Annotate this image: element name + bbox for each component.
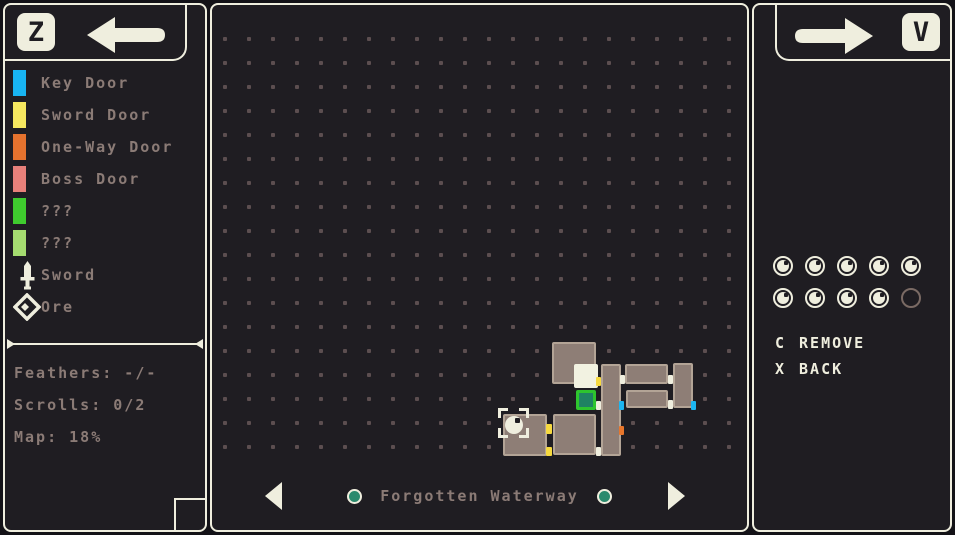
grid-dot [415, 181, 419, 185]
grid-dot [391, 205, 395, 209]
grid-dot [367, 421, 371, 425]
grid-dot [439, 301, 443, 305]
grid-dot [319, 445, 323, 449]
grid-dot [343, 37, 347, 41]
grid-dot [631, 277, 635, 281]
orb-notch [912, 261, 916, 265]
grid-dot [559, 85, 563, 89]
grid-dot [319, 85, 323, 89]
grid-dot [319, 133, 323, 137]
map-door-sword [546, 424, 552, 434]
boss-door-swatch [13, 166, 26, 192]
grid-dot [655, 109, 659, 113]
grid-dot [247, 37, 251, 41]
grid-dot [583, 229, 587, 233]
grid-dot [631, 229, 635, 233]
grid-dot [391, 37, 395, 41]
grid-dot [511, 229, 515, 233]
grid-dot [295, 181, 299, 185]
grid-dot [247, 109, 251, 113]
map-door-sword [546, 447, 552, 456]
grid-dot [583, 61, 587, 65]
grid-dot [487, 253, 491, 257]
grid-dot [535, 325, 539, 329]
map-door-key [691, 401, 696, 410]
grid-dot [631, 85, 635, 89]
grid-dot [535, 85, 539, 89]
grid-dot [631, 181, 635, 185]
grid-dot [535, 253, 539, 257]
grid-dot [727, 205, 731, 209]
grid-dot [559, 181, 563, 185]
grid-dot [439, 253, 443, 257]
grid-dot [271, 85, 275, 89]
grid-dot [535, 301, 539, 305]
stats-block: Feathers: -/- Scrolls: 0/2 Map: 18% [14, 357, 157, 453]
grid-dot [223, 157, 227, 161]
grid-dot [487, 397, 491, 401]
grid-dot [223, 229, 227, 233]
legend-label: One-Way Door [41, 138, 173, 156]
grid-dot [679, 157, 683, 161]
grid-dot [535, 205, 539, 209]
grid-dot [703, 397, 707, 401]
grid-dot [271, 421, 275, 425]
grid-dot [535, 133, 539, 137]
grid-dot [631, 349, 635, 353]
legend-item-ore: Ore [13, 291, 173, 323]
grid-dot [703, 133, 707, 137]
grid-dot [679, 253, 683, 257]
grid-dot [247, 301, 251, 305]
one-way-door-swatch [13, 134, 26, 160]
grid-dot [415, 373, 419, 377]
grid-dot [703, 181, 707, 185]
grid-dot [679, 205, 683, 209]
grid-dot [367, 133, 371, 137]
back-label: BACK [799, 360, 843, 378]
grid-dot [679, 37, 683, 41]
grid-dot [391, 445, 395, 449]
legend-label: Sword Door [41, 106, 151, 124]
grid-dot [583, 181, 587, 185]
grid-dot [655, 85, 659, 89]
grid-dot [343, 349, 347, 353]
grid-dot [367, 229, 371, 233]
grid-dot [415, 109, 419, 113]
grid-dot [247, 373, 251, 377]
grid-dot [439, 277, 443, 281]
grid-dot [295, 37, 299, 41]
grid-dot [487, 85, 491, 89]
grid-dot [295, 445, 299, 449]
grid-dot [295, 61, 299, 65]
grid-dot [271, 277, 275, 281]
grid-dot [391, 253, 395, 257]
grid-dot [535, 61, 539, 65]
legend-label: ??? [41, 202, 74, 220]
back-action[interactable]: X BACK [775, 356, 865, 382]
legend-label: Key Door [41, 74, 129, 92]
grid-dot [559, 325, 563, 329]
grid-dot [679, 277, 683, 281]
collectible-slots [773, 256, 921, 320]
player-marker-notch [515, 418, 520, 423]
map-door-open [668, 375, 673, 384]
grid-dot [319, 373, 323, 377]
grid-dot [583, 205, 587, 209]
z-key-button[interactable]: Z [17, 13, 55, 51]
grid-dot [247, 325, 251, 329]
grid-dot [727, 421, 731, 425]
grid-dot [463, 373, 467, 377]
grid-dot [703, 373, 707, 377]
grid-dot [367, 85, 371, 89]
grid-dot [727, 277, 731, 281]
grid-dot [295, 133, 299, 137]
grid-dot [463, 301, 467, 305]
grid-dot [679, 133, 683, 137]
legend-item-unknown-2: ??? [13, 227, 173, 259]
collectible-orb-filled [901, 256, 921, 276]
grid-dot [631, 421, 635, 425]
grid-dot [463, 397, 467, 401]
grid-dot [727, 133, 731, 137]
ore-icon [13, 292, 41, 322]
grid-dot [223, 85, 227, 89]
grid-dot [367, 205, 371, 209]
grid-dot [367, 445, 371, 449]
grid-dot [703, 301, 707, 305]
grid-dot [511, 253, 515, 257]
grid-dot [559, 205, 563, 209]
map-door-oneway [619, 426, 624, 435]
grid-dot [583, 157, 587, 161]
legend-panel: Z Key Door Sword Door One-Way Door Boss … [3, 3, 207, 532]
grid-dot [391, 109, 395, 113]
grid-dot [607, 277, 611, 281]
legend-item-boss-door: Boss Door [13, 163, 173, 195]
grid-dot [607, 301, 611, 305]
grid-dot [223, 37, 227, 41]
grid-dot [295, 373, 299, 377]
grid-dot [439, 157, 443, 161]
grid-dot [511, 109, 515, 113]
map-layer [212, 5, 747, 530]
grid-dot [607, 349, 611, 353]
map-room-normal [625, 364, 668, 384]
grid-dot [607, 325, 611, 329]
grid-dot [559, 61, 563, 65]
grid-dot [727, 349, 731, 353]
grid-dot [343, 277, 347, 281]
grid-dot [439, 445, 443, 449]
grid-dot [343, 229, 347, 233]
grid-dot [391, 397, 395, 401]
grid-dot [319, 253, 323, 257]
grid-dot [463, 157, 467, 161]
grid-dot [487, 205, 491, 209]
grid-dot [607, 181, 611, 185]
grid-dot [703, 61, 707, 65]
grid-dot [391, 181, 395, 185]
grid-dot [415, 349, 419, 353]
divider-line [12, 343, 198, 345]
grid-dot [511, 349, 515, 353]
map-door-sword [596, 377, 601, 386]
grid-dot [223, 445, 227, 449]
grid-dot [703, 325, 707, 329]
grid-dot [583, 301, 587, 305]
grid-dot [559, 157, 563, 161]
grid-dot [631, 253, 635, 257]
map-room-normal [673, 363, 693, 408]
grid-dot [463, 205, 467, 209]
grid-dot [727, 445, 731, 449]
region-next-arrow[interactable] [668, 482, 685, 510]
grid-dot [223, 133, 227, 137]
grid-dot [607, 61, 611, 65]
grid-dot [343, 61, 347, 65]
grid-dot [463, 421, 467, 425]
grid-dot [511, 325, 515, 329]
grid-dot [703, 277, 707, 281]
grid-dot [559, 301, 563, 305]
collectible-slot-row [773, 288, 921, 308]
grid-dot [367, 253, 371, 257]
grid-dot [703, 349, 707, 353]
region-nav: Forgotten Waterway [212, 479, 747, 513]
divider-arrow-right-icon [195, 339, 203, 349]
grid-dot [223, 301, 227, 305]
grid-dot [583, 277, 587, 281]
grid-dot [679, 349, 683, 353]
grid-dot [511, 373, 515, 377]
grid-dot [271, 325, 275, 329]
grid-dot [415, 61, 419, 65]
action-hints: C REMOVE X BACK [775, 330, 865, 382]
grid-dot [535, 37, 539, 41]
grid-dot [463, 445, 467, 449]
map-room-special [576, 390, 596, 410]
grid-dot [271, 373, 275, 377]
grid-dot [463, 181, 467, 185]
legend-item-one-way-door: One-Way Door [13, 131, 173, 163]
grid-dot [583, 253, 587, 257]
grid-dot [583, 133, 587, 137]
grid-dot [391, 229, 395, 233]
grid-dot [487, 421, 491, 425]
map-door-open [668, 400, 673, 409]
grid-dot [727, 253, 731, 257]
remove-key-label: C [775, 334, 786, 352]
grid-dot [583, 109, 587, 113]
grid-dot [415, 421, 419, 425]
grid-dot [223, 373, 227, 377]
grid-dot [319, 205, 323, 209]
grid-dot [607, 229, 611, 233]
orb-notch [816, 261, 820, 265]
grid-dot [655, 325, 659, 329]
grid-dot [247, 253, 251, 257]
grid-dot [655, 277, 659, 281]
grid-dot [271, 37, 275, 41]
grid-dot [343, 301, 347, 305]
collectible-orb-filled [837, 256, 857, 276]
grid-dot [655, 349, 659, 353]
grid-dot [367, 301, 371, 305]
grid-dot [511, 181, 515, 185]
grid-dot [439, 229, 443, 233]
grid-dot [511, 397, 515, 401]
grid-dot [607, 253, 611, 257]
grid-dot [463, 253, 467, 257]
grid-dot [727, 397, 731, 401]
selection-cursor-corner [498, 408, 508, 418]
grid-dot [487, 133, 491, 137]
collectible-orb-filled [773, 288, 793, 308]
grid-dot [607, 37, 611, 41]
grid-dot [583, 85, 587, 89]
grid-dot [631, 157, 635, 161]
grid-dot [295, 253, 299, 257]
grid-dot [319, 229, 323, 233]
grid-dot [295, 349, 299, 353]
grid-dot [247, 133, 251, 137]
grid-dot [343, 253, 347, 257]
grid-dot [247, 445, 251, 449]
grid-dot [439, 205, 443, 209]
grid-dot [703, 157, 707, 161]
remove-action[interactable]: C REMOVE [775, 330, 865, 356]
grid-dot [463, 229, 467, 233]
map-door-open [596, 447, 601, 456]
grid-dot [271, 301, 275, 305]
grid-dot [463, 277, 467, 281]
grid-dot [271, 253, 275, 257]
collectible-orb-filled [869, 256, 889, 276]
legend-label: Boss Door [41, 170, 140, 188]
grid-dot [247, 277, 251, 281]
grid-dot [631, 325, 635, 329]
grid-dot [535, 229, 539, 233]
unknown-door-swatch [13, 198, 26, 224]
grid-dot [295, 325, 299, 329]
collectible-slot-row [773, 256, 921, 276]
sword-door-swatch [13, 102, 26, 128]
grid-dot [631, 61, 635, 65]
grid-dot [343, 205, 347, 209]
grid-dot [727, 325, 731, 329]
grid-dot [487, 373, 491, 377]
grid-dot [703, 253, 707, 257]
grid-dot [223, 277, 227, 281]
grid-dot [247, 205, 251, 209]
grid-dot [511, 133, 515, 137]
grid-dot [415, 445, 419, 449]
right-header-box: V [775, 3, 952, 61]
corner-decoration [174, 498, 207, 532]
grid-dot [655, 157, 659, 161]
grid-dot [631, 133, 635, 137]
orb-notch [784, 293, 788, 297]
grid-dot [415, 301, 419, 305]
collectible-orb-filled [869, 288, 889, 308]
grid-dot [271, 397, 275, 401]
grid-dot [367, 349, 371, 353]
grid-dot [295, 109, 299, 113]
orb-notch [784, 261, 788, 265]
grid-dot [655, 253, 659, 257]
selection-cursor-corner [498, 428, 508, 438]
grid-dot [679, 61, 683, 65]
grid-dot [679, 181, 683, 185]
grid-dot [463, 37, 467, 41]
grid-dot [391, 157, 395, 161]
grid-dot [319, 277, 323, 281]
grid-dot [319, 157, 323, 161]
collectible-orb-filled [805, 288, 825, 308]
grid-dot [439, 37, 443, 41]
grid-dot [607, 85, 611, 89]
grid-dot [391, 325, 395, 329]
grid-dot [391, 301, 395, 305]
grid-dot [511, 157, 515, 161]
grid-dot [727, 229, 731, 233]
collectibles-panel: V C REMOVE X BACK [752, 3, 952, 532]
grid-dot [391, 277, 395, 281]
grid-dot [223, 421, 227, 425]
collectible-orb-empty [901, 288, 921, 308]
grid-dot [439, 109, 443, 113]
grid-dot [631, 301, 635, 305]
map-panel: Forgotten Waterway [210, 3, 749, 532]
orb-notch [848, 293, 852, 297]
grid-dot [535, 157, 539, 161]
remove-label: REMOVE [799, 334, 865, 352]
grid-dot [487, 445, 491, 449]
grid-dot [631, 445, 635, 449]
grid-dot [367, 37, 371, 41]
grid-dot [559, 133, 563, 137]
grid-dot [367, 277, 371, 281]
grid-dot [511, 277, 515, 281]
grid-dot [703, 421, 707, 425]
grid-dot [271, 109, 275, 113]
grid-dot [679, 445, 683, 449]
grid-dot [655, 445, 659, 449]
map-room-normal [626, 390, 668, 408]
grid-dot [367, 109, 371, 113]
grid-dot [223, 109, 227, 113]
map-room-normal [601, 364, 621, 456]
collectible-orb-filled [773, 256, 793, 276]
grid-dot [295, 277, 299, 281]
previous-page-arrow-icon[interactable] [87, 15, 167, 55]
legend-item-unknown-1: ??? [13, 195, 173, 227]
grid-dot [319, 301, 323, 305]
grid-dot [271, 157, 275, 161]
orb-notch [880, 261, 884, 265]
next-page-arrow-icon[interactable] [793, 16, 873, 56]
grid-dot [655, 61, 659, 65]
grid-dot [247, 85, 251, 89]
grid-dot [607, 133, 611, 137]
legend-item-sword-door: Sword Door [13, 99, 173, 131]
grid-dot [703, 229, 707, 233]
v-key-button[interactable]: V [902, 13, 940, 51]
region-indicator-dot [347, 489, 362, 504]
